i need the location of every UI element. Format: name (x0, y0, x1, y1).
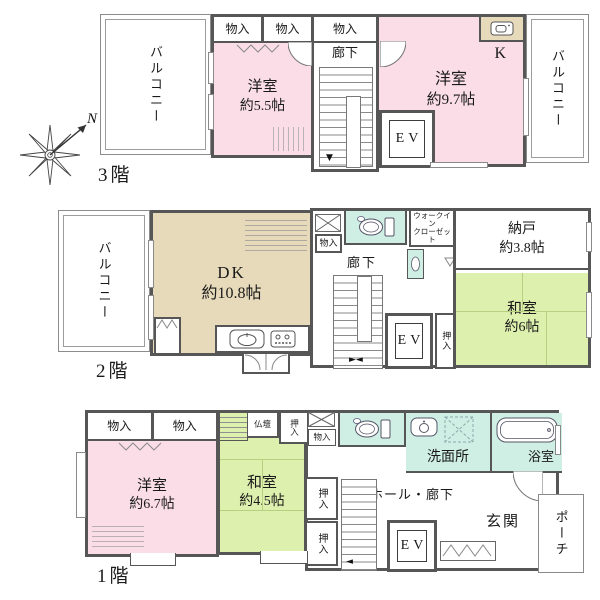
elevator-1f: EV (387, 520, 437, 572)
wic-label: ウォークインクローゼット (411, 212, 453, 244)
window (523, 78, 529, 136)
butsudan-label: 仏壇 (254, 420, 271, 429)
toilet-room-2f (344, 211, 407, 245)
shoe-cabinet (440, 541, 496, 561)
elevator-label: EV (395, 323, 423, 359)
shaft-x-icon (315, 214, 341, 232)
storage-label: 物入 (264, 23, 311, 35)
stair-rail (346, 96, 361, 168)
room-size: 約6.7帖 (129, 496, 175, 514)
walk-in-closet: ウォークインクローゼット (409, 211, 455, 247)
oshiire-1f-top: 押入 (279, 413, 307, 444)
corridor-label: 廊下 (314, 45, 376, 61)
storage-1f-small: 物入 (308, 429, 336, 446)
door-bay (242, 354, 290, 374)
storage-strip-3f-mid: 物入 (314, 17, 376, 43)
window (586, 222, 592, 252)
storage-2f: 物入 (315, 234, 342, 253)
room-name: DK (217, 262, 246, 284)
room-1f-western-6-7: 物入 物入 洋室 約6.7帖 (85, 410, 219, 557)
basin-icon (410, 417, 438, 437)
balcony-label: バルコニー (95, 241, 114, 321)
bathtub-icon (496, 417, 558, 443)
room-size: 約9.7帖 (427, 91, 476, 111)
elevator-3f: EV (379, 110, 435, 168)
room-3f-western-5-5: 物入 物入 洋室 約5.5帖 (211, 14, 314, 158)
storage-label: 物入 (313, 433, 330, 442)
elevator-label: EV (389, 120, 425, 158)
window (208, 52, 214, 84)
staircase-2f: ►◄ (333, 275, 383, 369)
corridor-label: 廊下 (347, 255, 377, 271)
sink-icon (229, 329, 265, 349)
kitchen-sink-icon (490, 21, 514, 36)
genkan-label: 玄関 (486, 513, 520, 532)
bathroom-label: 浴室 (528, 449, 554, 465)
basin-icon (410, 254, 421, 274)
closet-shelves (220, 413, 248, 441)
window (148, 295, 154, 340)
hall-label: ホール・廊下 (370, 487, 454, 503)
floor-label-1f: 1階 (97, 565, 132, 589)
ceiling-hatch (245, 216, 307, 254)
shoe-rack-zigzag-icon (441, 542, 493, 558)
porch-label: ポーチ (552, 510, 571, 558)
room-size: 約10.8帖 (201, 284, 261, 305)
oshiire-1f-b: 押入 (305, 521, 338, 566)
oshiire-1f-a: 押入 (305, 477, 338, 520)
door-arc-icon (380, 41, 406, 67)
room-3f-western-9-7: K 洋室 約9.7帖 EV (376, 14, 526, 167)
washroom-label: 洗面所 (406, 449, 490, 467)
shaft-x-icon (308, 412, 335, 427)
washer-space-icon (444, 416, 474, 443)
mini-kitchen-area (479, 17, 523, 42)
storage-label: 物入 (314, 23, 376, 35)
room-name: 洋室 (435, 70, 467, 91)
toilet-icon (349, 416, 395, 442)
staircase-1f: ◄ (341, 479, 377, 571)
room-size: 約3.8帖 (499, 240, 545, 258)
room-2f-dk: DK 約10.8帖 (150, 210, 313, 356)
window-hatch (269, 127, 307, 151)
storage-strip-3f: 物入 物入 (214, 17, 311, 43)
stair-arrows: ►◄ (349, 356, 363, 365)
staircase-3f: ▼ (319, 67, 373, 167)
closet-zigzag-icon (236, 44, 282, 54)
oshiire-label: 押入 (314, 533, 329, 555)
window (208, 94, 214, 130)
stove-icon (270, 330, 296, 348)
bathroom-1f: 浴室 (492, 413, 562, 473)
double-door-icon (244, 354, 288, 370)
corridor-block-2f: 物入 ウォークインクローゼット 廊下 ►◄ (310, 208, 456, 368)
floor-label-3f: 3階 (98, 164, 133, 188)
room-size: 約5.5帖 (240, 98, 286, 116)
room-2f-japanese-6: 和室 約6帖 (456, 273, 588, 366)
window-sill (130, 553, 176, 566)
room-name: 納戸 (508, 221, 536, 239)
balcony-3f-left: バルコニー (100, 14, 211, 155)
kitchen-label: K (494, 44, 506, 64)
cabinet-zigzag-icon (156, 319, 179, 329)
closet-zigzag-icon (118, 442, 164, 452)
stair-rail (357, 276, 372, 342)
balcony-3f-right: バルコニー (526, 14, 589, 163)
butsudan-space: 仏壇 (248, 413, 279, 438)
compass-rose: N (10, 105, 102, 193)
storage-strip-1f: 物入 物入 (88, 413, 216, 441)
window-sill (260, 551, 308, 564)
window (148, 240, 154, 288)
washroom-1f: 洗面所 (406, 413, 492, 473)
window (430, 162, 488, 168)
room-name: 洋室 (137, 477, 167, 497)
elevator-label: EV (397, 530, 427, 562)
cabinet (154, 317, 181, 355)
storage-label: 物入 (88, 420, 151, 432)
balcony-label: バルコニー (146, 45, 165, 125)
room-1f-japanese-4-5: 仏壇 押入 和室 約4.5帖 (217, 410, 307, 555)
storage-label: 物入 (214, 23, 261, 35)
window-hatch (92, 522, 144, 548)
east-block-2f: 納戸 約3.8帖 和室 約6帖 (453, 208, 591, 368)
washbasin-2f (407, 249, 424, 279)
window (555, 425, 561, 455)
balcony-label: バルコニー (548, 49, 567, 129)
bay-window (76, 452, 86, 518)
balcony-2f: バルコニー (58, 210, 150, 352)
oshiire-label: 押入 (314, 488, 329, 510)
floor-plan: N バルコニー 物入 物入 洋室 約5.5帖 物入 廊下 ▼ (0, 0, 600, 600)
toilet-icon (353, 214, 399, 240)
porch: ポーチ (538, 494, 584, 573)
elevator-2f: EV (385, 313, 433, 369)
corridor-3f: 物入 廊下 ▼ (311, 14, 379, 172)
room-2f-nando: 納戸 約3.8帖 (456, 211, 588, 270)
east-block-1f: 洗面所 浴室 ホール・廊下 ◄ EV 玄関 (305, 410, 559, 571)
storage-label: 物入 (154, 420, 217, 432)
door-arc-icon (288, 42, 312, 66)
compass-star-icon: N (10, 105, 102, 193)
toilet-room-1f (338, 413, 406, 447)
stair-arrow: ◄ (346, 558, 353, 567)
oshiire-label: 押入 (290, 419, 299, 436)
floor-label-2f: 2階 (96, 360, 131, 384)
oshiire-label: 押入 (441, 331, 450, 351)
window (586, 292, 592, 338)
room-size: 約6帖 (505, 319, 540, 337)
compass-north-label: N (86, 111, 98, 127)
room-name: 洋室 (247, 78, 277, 98)
storage-label: 物入 (319, 239, 337, 248)
stair-down-arrow: ▼ (326, 154, 333, 163)
kitchen-counter (215, 325, 310, 353)
